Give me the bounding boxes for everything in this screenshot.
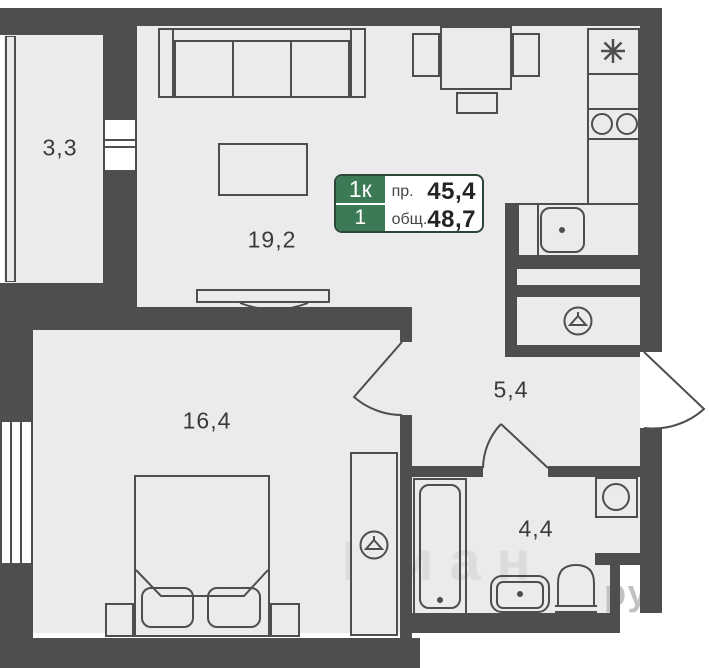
wall-hall-bath-right [548, 466, 662, 477]
wall-bedroom-door-stub [400, 330, 412, 342]
badge-areas-section: пр. 45,4 общ. 48,7 [385, 176, 482, 231]
coffee-table [218, 143, 308, 196]
dining-chair-left [412, 33, 440, 77]
balcony-glazing-window [5, 36, 16, 282]
badge-green-section: 1к 1 [336, 176, 385, 231]
sofa-armrest-right [350, 28, 366, 98]
sink-drain-dot [559, 227, 565, 233]
wall-bottom [0, 638, 420, 668]
badge-area-label: общ. [392, 211, 428, 229]
wall-hall-bath-left [405, 466, 483, 477]
sofa-cushion [232, 40, 292, 98]
counter-divider [537, 203, 539, 257]
bedroom-window [0, 420, 33, 565]
room-label-bathroom: 4,4 [519, 516, 554, 543]
room-label-hallway: 5,4 [494, 377, 529, 404]
balcony-door-sash [105, 139, 135, 141]
wall-balcony-right-upper [103, 35, 137, 118]
washbasin-drain-dot [517, 591, 523, 597]
stove-burner [616, 113, 638, 135]
wall-left-mid [0, 283, 33, 420]
wall-living-bedroom [0, 307, 412, 330]
dining-chair-right [512, 33, 540, 77]
bedroom-wardrobe [350, 452, 398, 636]
wall-top [0, 8, 662, 26]
bathtub-drain-dot [437, 597, 443, 603]
wall-closet-bottom [505, 345, 640, 357]
tv-panel [196, 289, 330, 303]
badge-area-value: 45,4 [427, 178, 476, 206]
sofa-cushion [174, 40, 234, 98]
wall-balcony-right-lower [103, 172, 137, 283]
wall-bathroom-bottom [405, 613, 620, 633]
badge-area-value: 48,7 [427, 206, 476, 233]
room-label-living-kitchen: 19,2 [248, 227, 297, 254]
badge-floor-number: 1 [336, 205, 385, 231]
room-label-balcony: 3,3 [43, 135, 78, 162]
wall-balcony-top [0, 26, 137, 35]
balcony-door-unit [103, 118, 137, 172]
wall-right-upper [640, 8, 662, 352]
hall-closet [517, 297, 640, 345]
sofa-armrest-left [158, 28, 174, 98]
bedroom-window-mullion [20, 422, 22, 563]
wall-bedroom-hall [400, 415, 412, 638]
kitchen-divider [587, 108, 640, 110]
badge-area-row: пр. 45,4 [392, 178, 476, 206]
wall-step-bottom-right [595, 553, 662, 565]
room-label-bedroom: 16,4 [183, 408, 232, 435]
pillow [207, 587, 261, 628]
badge-area-label: пр. [392, 183, 414, 201]
wall-under-counter [517, 257, 640, 269]
wall-closet-top [517, 285, 640, 297]
badge-area-row: общ. 48,7 [392, 206, 476, 233]
nightstand-right [270, 603, 300, 637]
bedroom-window-mullion [10, 422, 12, 563]
outside-left-sliver [0, 26, 4, 286]
nightstand-left [105, 603, 134, 637]
wall-left-bottom [0, 565, 33, 668]
balcony-door-sash [105, 146, 135, 148]
kitchen-divider [587, 73, 640, 75]
floor-plan: Циан ру [0, 0, 709, 668]
dining-table [440, 26, 512, 90]
washing-machine-drum [602, 483, 630, 511]
stove-burner [591, 113, 613, 135]
bathtub-inner [419, 484, 461, 609]
wall-closet-left [505, 203, 517, 357]
sofa-cushion [290, 40, 350, 98]
badge-rooms-count: 1к [336, 176, 385, 203]
area-info-badge: 1к 1 пр. 45,4 общ. 48,7 [334, 174, 484, 233]
pillow [141, 587, 194, 628]
outside-right [662, 0, 709, 668]
entry-threshold [640, 352, 662, 428]
outside-top [0, 0, 709, 8]
outside-bottom-right [420, 633, 709, 668]
kitchen-divider [587, 138, 640, 140]
wall-right-lower [640, 428, 662, 613]
dining-chair-bottom [456, 92, 498, 114]
